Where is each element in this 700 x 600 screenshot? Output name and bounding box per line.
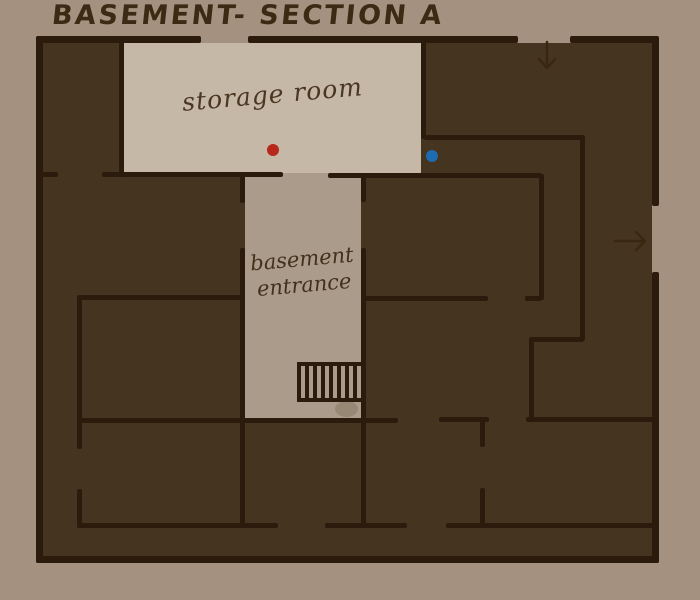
wall-segment bbox=[79, 295, 243, 300]
wall-segment bbox=[529, 337, 534, 421]
down-arrow-icon bbox=[535, 40, 559, 76]
wall-segment bbox=[580, 135, 585, 341]
wall-segment bbox=[325, 523, 407, 528]
red-dot-marker bbox=[267, 144, 279, 156]
wall-segment bbox=[102, 172, 283, 177]
wall-segment bbox=[531, 337, 584, 342]
wall-segment bbox=[41, 172, 58, 177]
wall-segment bbox=[119, 38, 124, 177]
blue-dot-marker bbox=[426, 150, 438, 162]
wall-segment bbox=[240, 173, 245, 203]
wall-segment bbox=[424, 135, 584, 140]
stairs-icon bbox=[297, 362, 361, 402]
wall-segment bbox=[79, 418, 398, 423]
wall-segment bbox=[77, 489, 82, 528]
wall-segment bbox=[421, 40, 426, 139]
wall-segment bbox=[248, 36, 518, 43]
wall-segment bbox=[480, 488, 485, 528]
wall-segment bbox=[570, 36, 659, 43]
right-arrow-icon bbox=[612, 228, 654, 254]
wall-segment bbox=[446, 523, 653, 528]
floor-plan-canvas: BASEMENT- SECTION A storage room basemen… bbox=[0, 0, 700, 600]
wall-segment bbox=[36, 36, 43, 563]
wall-segment bbox=[652, 38, 659, 206]
wall-segment bbox=[77, 295, 82, 449]
wall-segment bbox=[480, 417, 485, 447]
wall-segment bbox=[79, 523, 278, 528]
wall-segment bbox=[526, 417, 655, 422]
wall-segment bbox=[361, 173, 366, 202]
wall-segment bbox=[361, 296, 488, 301]
smudge-marker bbox=[335, 401, 358, 417]
wall-segment bbox=[539, 174, 544, 300]
wall-segment bbox=[36, 556, 659, 563]
